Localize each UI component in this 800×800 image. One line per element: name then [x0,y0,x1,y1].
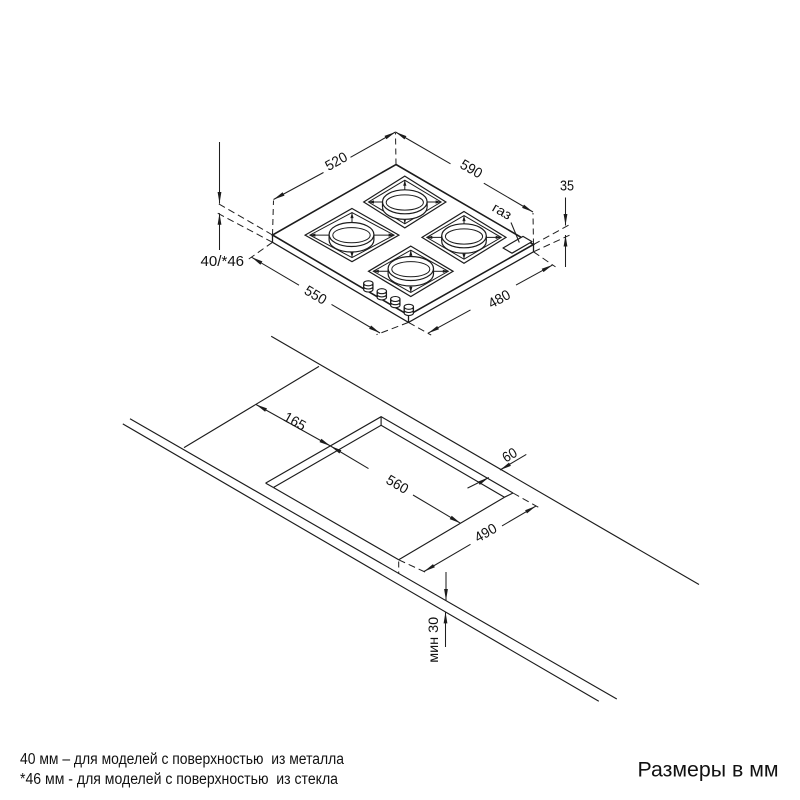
svg-text:40 мм – для моделей с поверхно: 40 мм – для моделей с поверхностью из ме… [20,751,344,768]
svg-text:*46 мм - для моделей с поверхн: *46 мм - для моделей с поверхностью из с… [20,771,338,788]
svg-text:40/*46: 40/*46 [201,254,245,270]
svg-text:Размеры в мм: Размеры в мм [638,759,779,782]
svg-text:мин 30: мин 30 [426,617,441,663]
svg-text:35: 35 [560,179,574,195]
